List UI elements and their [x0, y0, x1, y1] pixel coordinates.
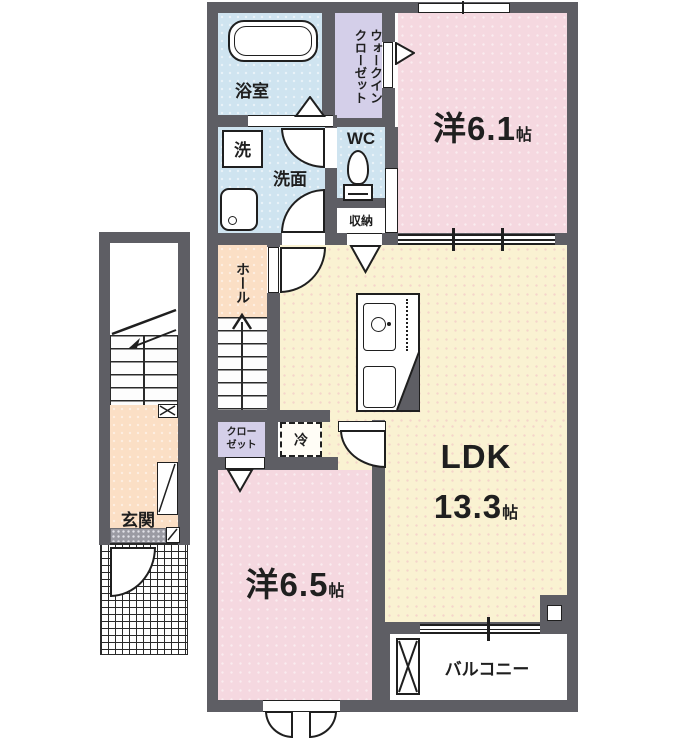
western61-window [418, 3, 510, 13]
label-western-6-5-name: 洋6.5 [246, 566, 329, 603]
label-western-6-1-name: 洋6.1 [433, 110, 516, 147]
wic-door-swing-icon [395, 42, 415, 65]
toilet-bowl [347, 150, 369, 185]
sliding-door-rail [398, 239, 555, 241]
annex-wall-top [99, 232, 190, 243]
label-ldk-size-unit: 帖 [502, 505, 518, 522]
label-hall: ホール [231, 250, 253, 316]
label-fridge: 冷 [280, 430, 322, 450]
label-bath: 浴室 [212, 77, 292, 102]
annex-meter-x-icon [159, 405, 176, 416]
closet-folding-door-icon [226, 469, 254, 493]
wash-basin-drain [228, 216, 237, 225]
wall-top [207, 2, 578, 13]
bath-folding-door-icon [294, 96, 326, 117]
western65-door-left-swing [265, 711, 293, 738]
label-wic-line2: クローゼット [351, 16, 367, 116]
ldk-notch-window [547, 605, 562, 621]
hall-door-leaf [268, 247, 279, 293]
label-western-6-1: 洋6.1帖 [398, 102, 567, 150]
wall-left [207, 2, 218, 712]
bathtub-inner [234, 26, 312, 56]
label-balcony: バルコニー [422, 655, 552, 680]
kitchen-faucet-dot [387, 322, 391, 326]
entrance-step-side [166, 527, 180, 543]
storage-door-gap [347, 233, 382, 245]
annex-meter-box [158, 404, 178, 418]
wall-right [567, 2, 578, 712]
balcony-window-rail [420, 629, 540, 631]
toilet-tank [343, 184, 373, 201]
western61-window-mullion [462, 1, 464, 14]
label-ldk-size-value: 13.3 [434, 488, 502, 525]
label-washer: 洗 [222, 136, 263, 161]
label-closet-line1: クロー [218, 426, 265, 439]
label-ldk: LDK [385, 438, 567, 476]
floor-plan: 浴室 ウォークイン クローゼット 洋6.1帖 洗 洗面 WC 収納 ホール クロ… [0, 0, 682, 744]
storage-folding-door-icon [349, 245, 382, 274]
label-entrance: 玄関 [108, 506, 168, 531]
annex-wall-left [99, 232, 110, 545]
western65-door-right-swing [309, 711, 337, 738]
entrance-step-side-line [167, 528, 178, 541]
balcony-x-icon [398, 640, 418, 693]
wic-door-leaf [383, 42, 393, 88]
wall-stairs-bottom [207, 410, 330, 422]
wall-wic-bottom [335, 118, 382, 127]
kitchen-counter-dotted-edge [406, 299, 408, 351]
label-wic-line1: ウォークイン [366, 16, 382, 116]
balcony-window-tick [487, 617, 490, 641]
annex-stair-break-lines [110, 300, 178, 355]
balcony-sliding-window [420, 624, 540, 634]
label-storage: 収納 [337, 212, 385, 229]
room-ldk-upper [280, 245, 567, 422]
label-walk-in-closet: ウォークイン クローゼット [338, 16, 382, 116]
toilet-tank-line [348, 193, 368, 195]
label-western-6-5: 洋6.5帖 [218, 558, 372, 606]
balcony-x-box [396, 638, 420, 695]
wc-door-gap [325, 128, 337, 168]
annex-wall-right [178, 232, 190, 545]
label-closet-line2: ゼット [218, 439, 265, 452]
kitchen-corner-panel [396, 352, 420, 412]
wall-balcony-left [378, 634, 390, 712]
label-washroom: 洗面 [255, 165, 325, 190]
kitchen-counter [356, 293, 420, 412]
hall-stairs-centerline [241, 322, 243, 410]
closet-door-leaf [225, 457, 265, 469]
label-ldk-size: 13.3帖 [385, 488, 567, 526]
label-wc: WC [337, 129, 385, 149]
label-closet: クロー ゼット [218, 426, 265, 452]
kitchen-cabinet [363, 366, 396, 408]
western61-sliding-door [398, 234, 555, 245]
wall-closet-fridge [265, 422, 278, 457]
western61-left-door-leaf [385, 168, 398, 233]
label-western-6-1-unit: 帖 [516, 127, 532, 144]
sliding-door-tick-2 [501, 228, 504, 251]
sliding-door-tick-1 [452, 228, 455, 251]
wash-basin [220, 188, 258, 231]
washroom-door-gap [282, 233, 325, 245]
kitchen-faucet [371, 317, 386, 332]
bathtub [228, 20, 318, 62]
label-western-6-5-unit: 帖 [328, 583, 344, 600]
